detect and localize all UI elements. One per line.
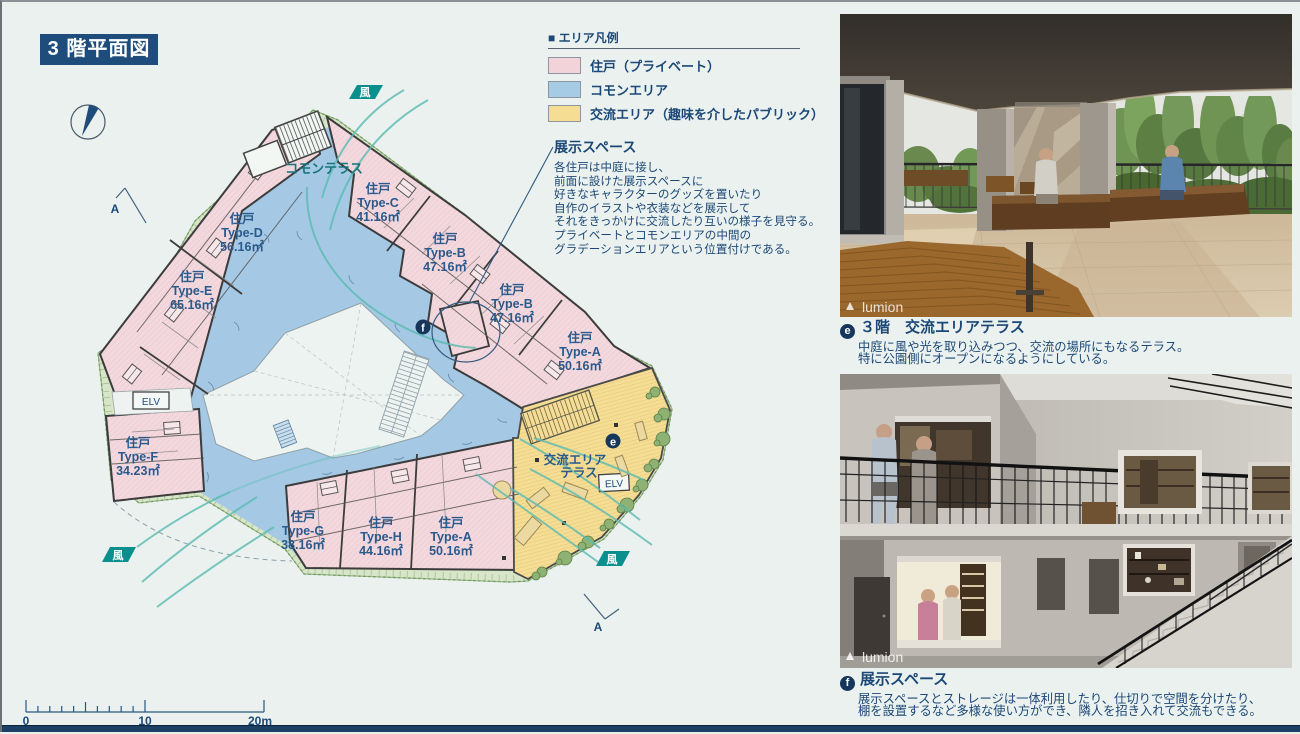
svg-text:住戸: 住戸 [179,269,204,284]
svg-text:住戸: 住戸 [438,515,463,530]
svg-text:住戸: 住戸 [499,282,524,297]
svg-text:交流エリア: 交流エリア [544,452,607,467]
svg-text:56.16㎡: 56.16㎡ [220,239,264,254]
svg-text:Type-A: Type-A [559,345,600,359]
svg-text:65.16㎡: 65.16㎡ [170,297,214,312]
svg-text:テラス: テラス [560,466,597,480]
svg-text:住戸: 住戸 [432,231,457,246]
svg-text:e: e [610,437,616,449]
svg-text:住戸: 住戸 [290,509,315,524]
svg-text:34.23㎡: 34.23㎡ [116,463,160,478]
svg-text:47.16㎡: 47.16㎡ [490,310,534,325]
svg-text:A: A [594,620,603,634]
svg-text:Type-B: Type-B [491,297,532,311]
svg-text:風: 風 [360,86,371,99]
svg-text:住戸: 住戸 [229,211,254,226]
svg-text:44.16㎡: 44.16㎡ [359,543,403,558]
svg-text:住戸: 住戸 [125,435,150,450]
svg-text:A: A [111,202,120,216]
svg-text:41.16㎡: 41.16㎡ [356,209,400,224]
svg-text:Type-D: Type-D [221,226,262,240]
svg-text:風: 風 [607,553,618,566]
svg-text:Type-F: Type-F [118,450,158,464]
svg-text:ELV: ELV [605,478,624,490]
svg-text:ELV: ELV [142,397,160,408]
svg-text:47.16㎡: 47.16㎡ [423,259,467,274]
svg-text:Type-H: Type-H [360,530,401,544]
svg-text:Type-G: Type-G [282,524,324,538]
svg-text:Type-A: Type-A [430,530,471,544]
svg-text:Type-B: Type-B [424,246,465,260]
svg-text:住戸: 住戸 [567,330,592,345]
svg-text:lumion: lumion [862,299,903,315]
svg-text:50.16㎡: 50.16㎡ [429,543,473,558]
svg-text:f: f [421,323,425,335]
svg-text:住戸: 住戸 [368,515,393,530]
svg-text:コモンテラス: コモンテラス [285,161,363,176]
svg-text:50.16㎡: 50.16㎡ [558,358,602,373]
svg-text:lumion: lumion [862,649,903,665]
svg-text:風: 風 [113,549,124,562]
svg-text:38.16㎡: 38.16㎡ [281,537,325,552]
svg-text:住戸: 住戸 [365,181,390,196]
svg-text:Type-E: Type-E [172,284,213,298]
svg-text:Type-C: Type-C [357,196,398,210]
